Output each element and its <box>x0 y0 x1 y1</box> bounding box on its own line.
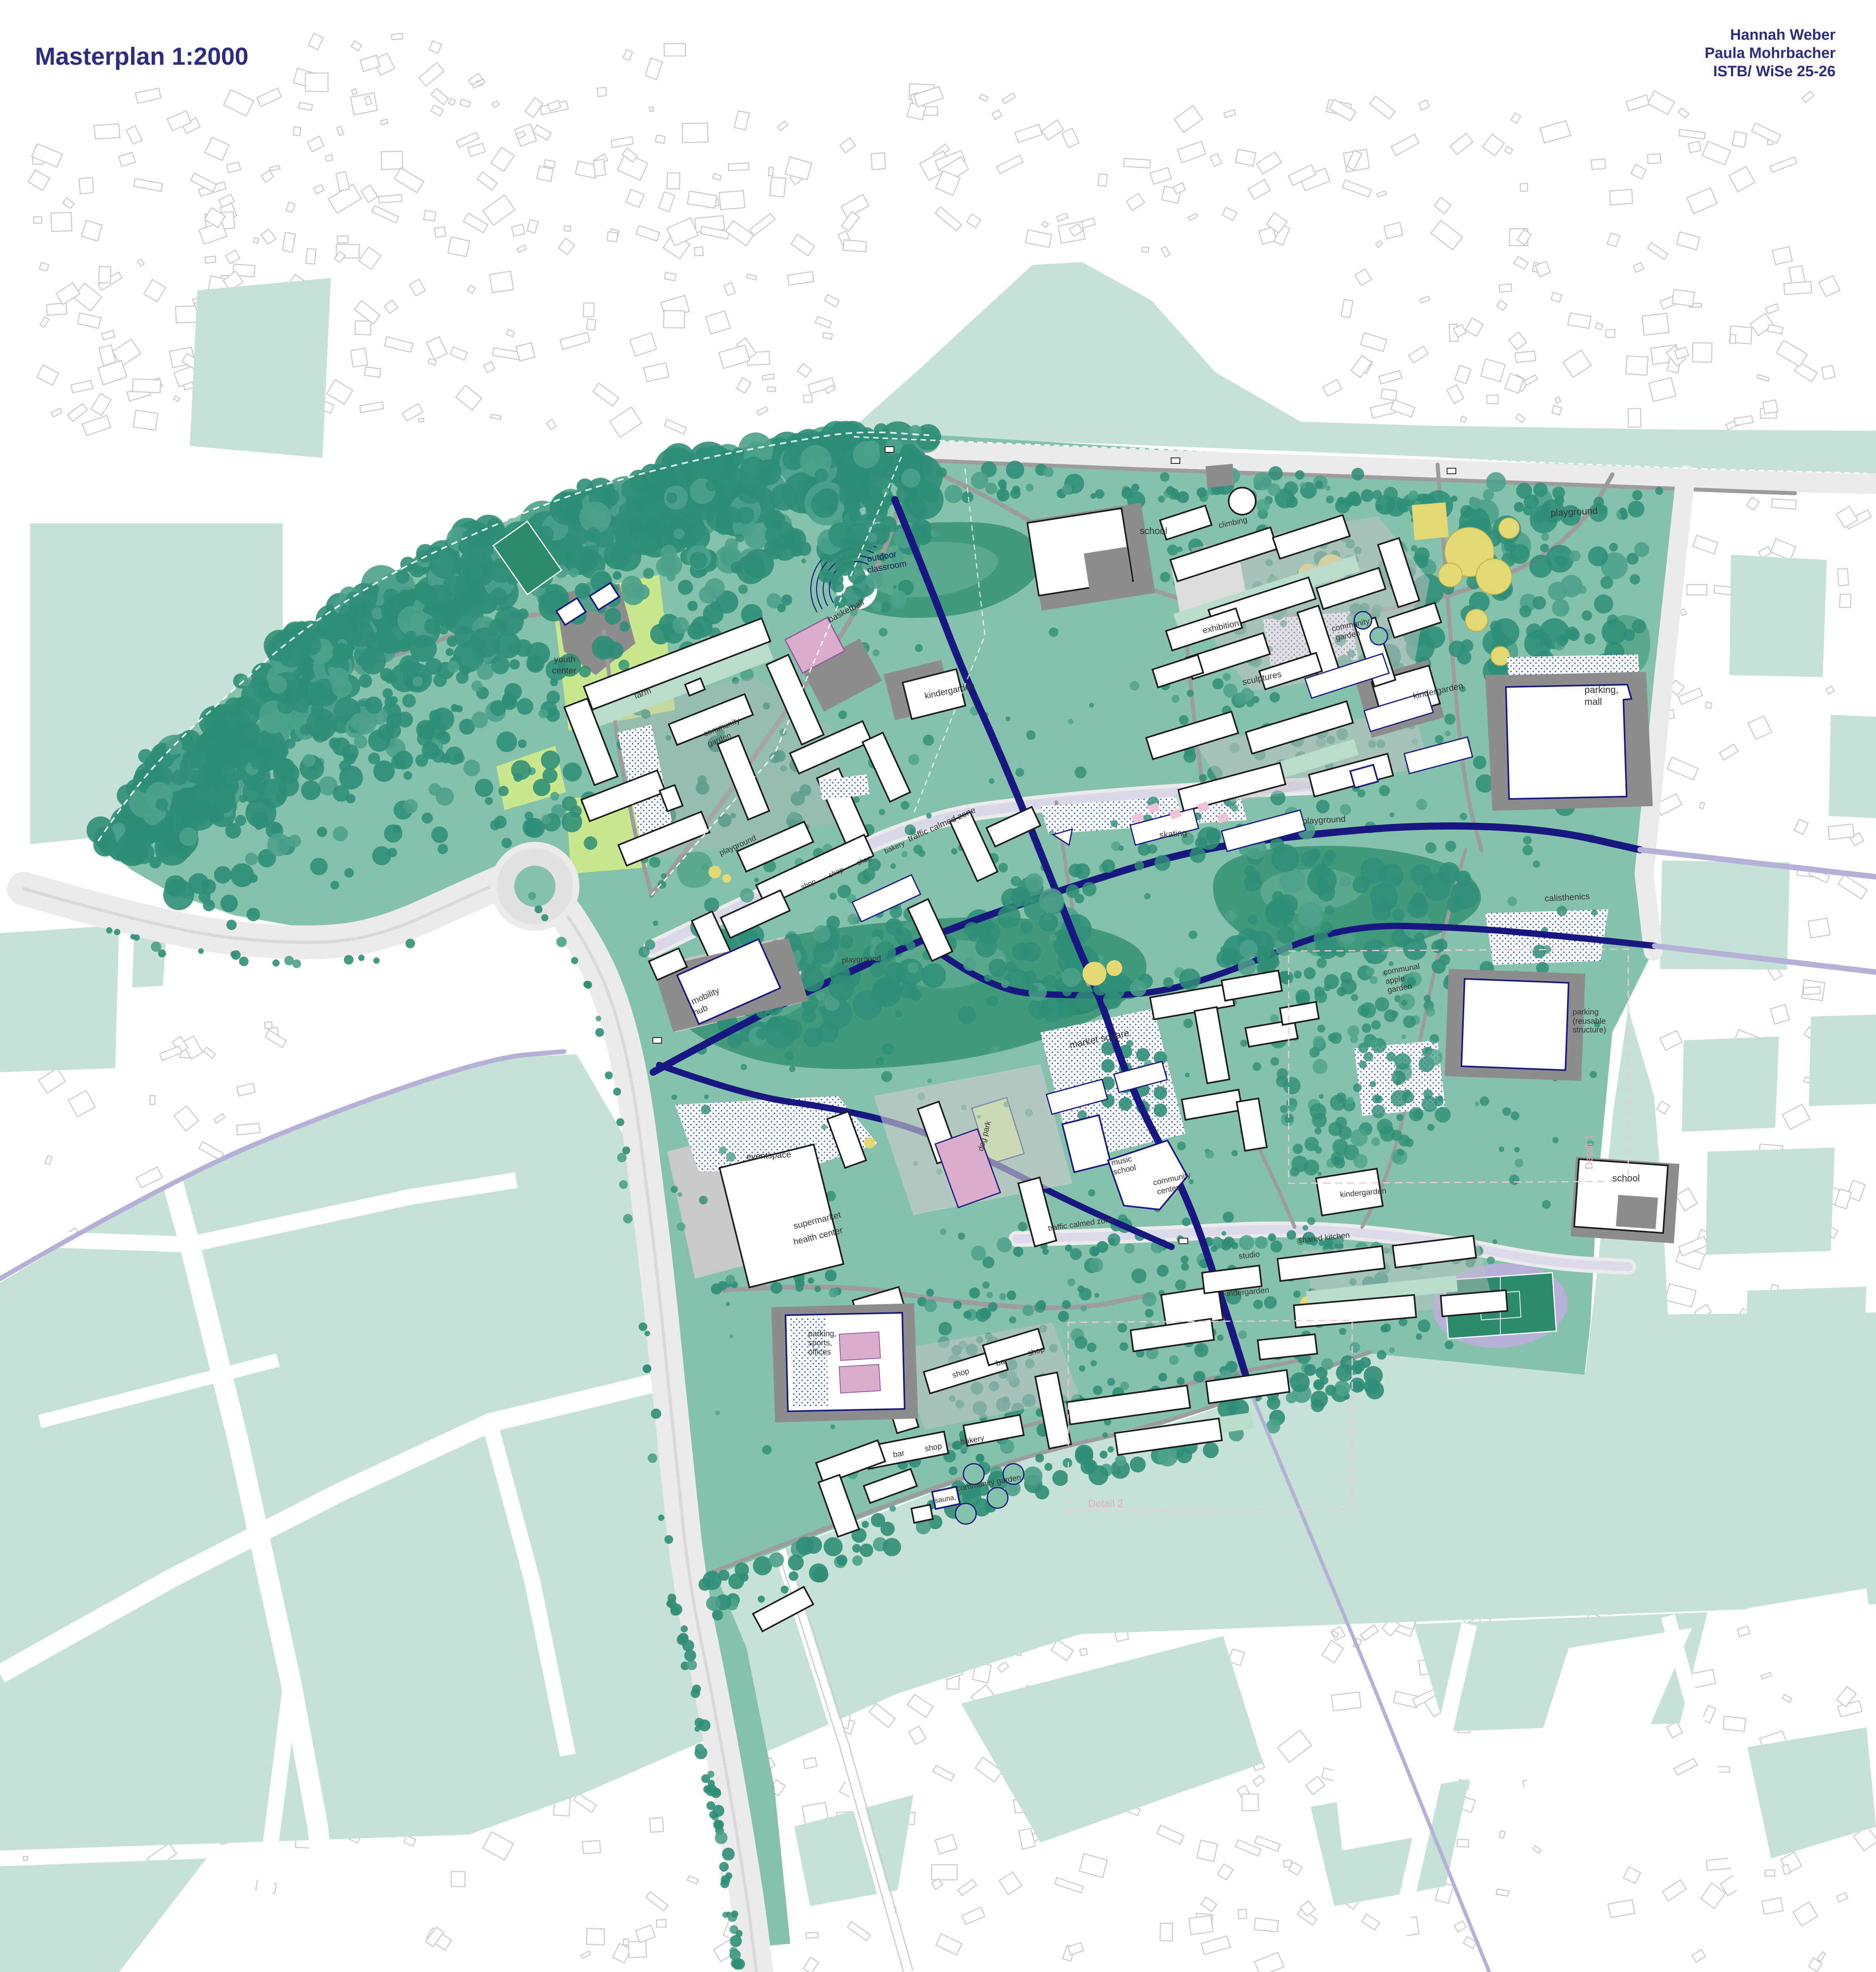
svg-text:Detail 1: Detail 1 <box>1583 1135 1595 1169</box>
svg-text:school: school <box>1612 1173 1640 1184</box>
svg-text:parking,: parking, <box>808 1329 836 1338</box>
svg-text:structure): structure) <box>1573 1026 1606 1034</box>
svg-text:youth: youth <box>554 654 575 664</box>
svg-text:parking,: parking, <box>1585 685 1618 695</box>
svg-text:center: center <box>552 666 576 675</box>
svg-text:Masterplan 1:2000: Masterplan 1:2000 <box>35 43 249 70</box>
svg-text:parking: parking <box>1573 1008 1599 1017</box>
svg-text:school: school <box>1140 526 1167 536</box>
svg-text:(reusable: (reusable <box>1573 1017 1606 1026</box>
svg-text:Paula Mohrbacher: Paula Mohrbacher <box>1705 45 1836 62</box>
svg-text:ISTB/ WiSe 25-26: ISTB/ WiSe 25-26 <box>1713 63 1835 80</box>
svg-text:offices: offices <box>808 1348 831 1356</box>
svg-text:mall: mall <box>1585 697 1602 707</box>
svg-text:sports,: sports, <box>808 1339 832 1347</box>
svg-text:Hannah Weber: Hannah Weber <box>1730 27 1836 43</box>
svg-text:Detail 2: Detail 2 <box>1088 1497 1123 1509</box>
